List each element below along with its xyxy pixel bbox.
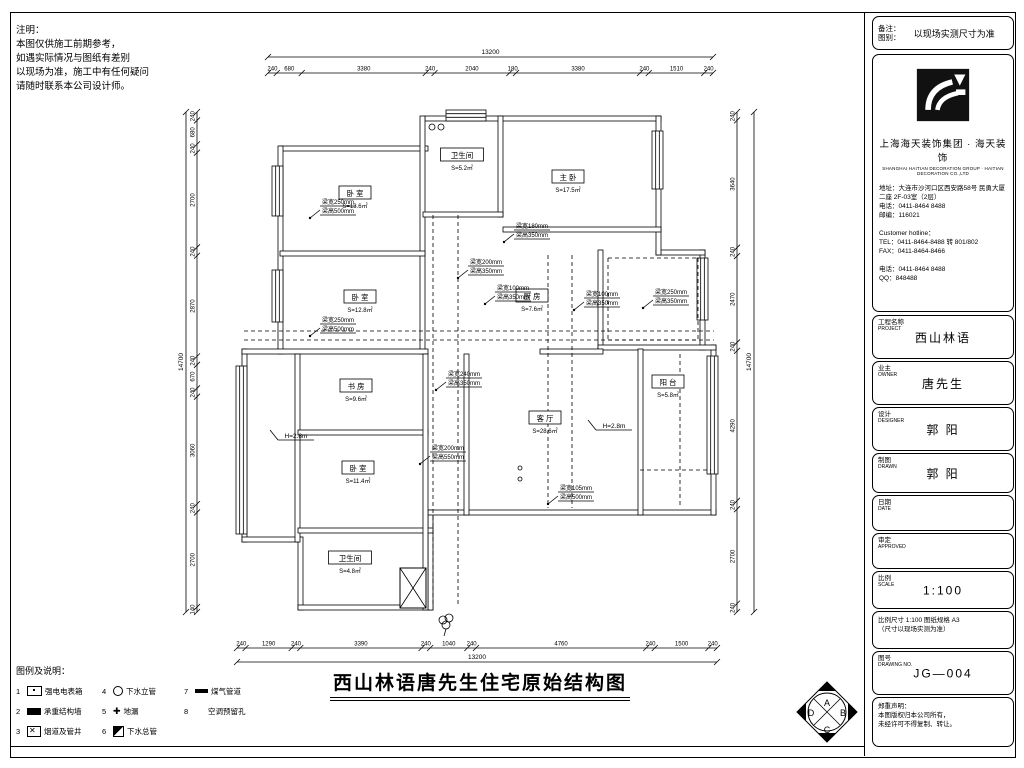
- wall: [540, 349, 603, 354]
- beam-tag: 梁高350mm: [470, 267, 502, 275]
- beam-leader: [457, 277, 459, 279]
- wall: [428, 510, 716, 515]
- titleblock-field: 比例 SCALE 1:100: [872, 571, 1014, 609]
- beam-tag: 梁宽100mm: [586, 290, 618, 298]
- dim-label: 670: [191, 371, 197, 382]
- beam-leader: [484, 303, 486, 305]
- dim-label: 240: [708, 642, 719, 648]
- drain-pipe-icon: [518, 466, 522, 470]
- legend-item-label: 下水立管: [126, 686, 156, 697]
- field-label-en: APPROVED: [873, 544, 1013, 550]
- legend-item-number: 4: [102, 687, 110, 696]
- room-area-label: S=5.2㎡: [451, 164, 473, 172]
- wall: [498, 116, 503, 217]
- beam-tag: 梁宽105mm: [560, 484, 592, 492]
- room-label: 卧 室: [349, 463, 367, 473]
- dim-label: 3380: [357, 67, 371, 73]
- remark-value: 以现场实测尺寸为准: [901, 27, 1009, 40]
- room-area-label: S=11.4㎡: [346, 477, 371, 485]
- dim-label: 1290: [262, 642, 276, 648]
- titleblock-field: 审定 APPROVED: [872, 533, 1014, 569]
- legend-item: 1 强电电表箱: [16, 686, 102, 697]
- window: [236, 366, 247, 534]
- room-area-label: S=12.8㎡: [347, 306, 372, 314]
- beam-leader: [436, 382, 446, 390]
- wall: [638, 349, 643, 515]
- wall: [428, 510, 433, 610]
- dim-total-label: 13200: [468, 654, 486, 661]
- beam-leader: [573, 309, 575, 311]
- dim-label: 140: [191, 604, 197, 615]
- address-line: 二座 2F-03室（2层）: [879, 193, 1007, 202]
- wall: [298, 528, 433, 533]
- beam-leader: [310, 328, 320, 336]
- room-area-label: S=7.6㎡: [521, 305, 543, 313]
- dim-label: 680: [191, 127, 197, 138]
- legend-item-label: 下水总管: [127, 726, 157, 737]
- stamp-letter: D: [808, 708, 815, 718]
- beam-tag: 梁宽180mm: [516, 222, 548, 230]
- beam-tag: 梁宽250mm: [322, 198, 354, 206]
- room-label: 卫生间: [339, 553, 362, 563]
- solid-symbol-icon: [27, 708, 41, 715]
- stamp-letter: C: [824, 725, 831, 735]
- drain-pipe-icon: [429, 124, 435, 130]
- beam-leader: [503, 241, 505, 243]
- legend-item-label: 煤气管道: [211, 686, 241, 697]
- cross-symbol-icon: ✚: [113, 707, 121, 716]
- height-note: H=2.8m: [603, 423, 626, 430]
- wall: [280, 251, 425, 256]
- company-address: 地址：大连市沙河口区西安路58号 民勇大厦二座 2F-03室（2层）电话：041…: [879, 184, 1007, 283]
- wall: [298, 430, 428, 435]
- company-name-en: SHANGHAI HAITIAN DECORATION GROUP · HAIT…: [879, 166, 1007, 176]
- address-line: 地址：大连市沙河口区西安路58号 民勇大厦: [879, 184, 1007, 193]
- beam-tag: 梁高500mm: [560, 493, 592, 501]
- legend-item-number: 1: [16, 687, 24, 696]
- dim-label: 240: [421, 642, 432, 648]
- dim-label: 240: [291, 642, 302, 648]
- dim-label: 180: [508, 67, 519, 73]
- wall: [242, 537, 301, 542]
- dim-label: 240: [191, 387, 197, 398]
- dim-label: 4760: [554, 642, 568, 648]
- legend-item-number: 3: [16, 727, 24, 736]
- beam-tag: 梁宽240mm: [448, 370, 480, 378]
- field-label: 工程名称: [873, 316, 1013, 326]
- beam-tag: 梁高350mm: [516, 231, 548, 239]
- address-line: [879, 220, 1007, 229]
- drawing-sheet: 注明：本图仅供施工前期参考，如遇实际情况与图纸有差别以现场为准，施工中有任何疑问…: [0, 0, 1024, 768]
- window: [652, 131, 663, 189]
- room-area-label: S=28.6㎡: [532, 427, 557, 435]
- stamp-corner: [818, 682, 836, 691]
- wall: [295, 354, 300, 542]
- legend-item-number: 2: [16, 707, 24, 716]
- dim-label: 1510: [670, 67, 684, 73]
- room-label: 客 厅: [536, 413, 554, 423]
- beam-tag: 梁宽200mm: [432, 444, 464, 452]
- titleblock-note: 比例尺寸 1:100 图纸规格 A3（尺寸以现场实测为准）: [872, 611, 1014, 649]
- dim-label: 1500: [675, 642, 689, 648]
- legend-item: 4 下水立管: [102, 686, 184, 697]
- dim-label: 3640: [731, 177, 737, 191]
- height-note-leader: [588, 420, 596, 430]
- beam-leader: [458, 270, 468, 278]
- height-note-leader: [270, 430, 278, 440]
- legend: 图例及说明： 1 强电电表箱2 承重结构墙3 烟道及管井4 下水立管5 ✚ 地漏…: [16, 664, 272, 741]
- legend-item: 7 煤气管道: [184, 686, 272, 697]
- beam-leader: [435, 389, 437, 391]
- wall: [242, 349, 428, 354]
- beam-leader: [643, 300, 653, 308]
- dim-label: 240: [236, 642, 247, 648]
- remark-label-1: 备注：: [878, 24, 901, 33]
- beam-tag: 梁高350mm: [448, 379, 480, 387]
- field-label: 比例: [873, 572, 1013, 582]
- wall: [656, 250, 705, 255]
- room-label: 卧 室: [346, 188, 364, 198]
- beam-leader: [642, 307, 644, 309]
- drawing-title: 西山林语唐先生住宅原始结构图: [330, 668, 630, 701]
- beam-tag: 梁高350mm: [655, 297, 687, 305]
- dim-label: 2870: [191, 299, 197, 313]
- room-area-label: S=9.6㎡: [345, 395, 367, 403]
- beam-leader: [309, 335, 311, 337]
- dim-label: 240: [467, 642, 478, 648]
- field-label: 日期: [873, 496, 1013, 506]
- box-x-symbol-icon: [27, 726, 41, 737]
- remark-box: 备注： 图别： 以现场实测尺寸为准: [872, 16, 1014, 50]
- window: [272, 166, 283, 216]
- circle-symbol-icon: [113, 686, 123, 696]
- stamp-corner: [797, 703, 806, 721]
- dim-label: 240: [191, 355, 197, 366]
- field-value: 唐先生: [873, 375, 1013, 392]
- address-line: 邮编：116021: [879, 211, 1007, 220]
- legend-item-number: 8: [184, 707, 192, 716]
- address-line: Customer hotline：: [879, 229, 1007, 238]
- company-box: 上海海天装饰集团 · 海天装饰 SHANGHAI HAITIAN DECORAT…: [872, 54, 1014, 312]
- wall: [598, 345, 716, 350]
- beam-leader: [574, 302, 584, 310]
- titleblock-field: 日期 DATE: [872, 495, 1014, 531]
- titleblock-note: 郑重声明：本图版权归本公司所有，未经许可不得复制、转让。: [872, 697, 1014, 747]
- window: [707, 356, 718, 474]
- dim-total-label: 14700: [746, 353, 753, 371]
- dim-label: 2040: [465, 67, 479, 73]
- legend-item: 8 空调预留孔: [184, 706, 272, 717]
- dim-label: 240: [731, 602, 737, 613]
- field-label: 审定: [873, 534, 1013, 544]
- drain-pipe-icon: [518, 477, 522, 481]
- stamp-corner: [848, 703, 857, 721]
- dim-label: 2700: [191, 193, 197, 207]
- field-label: 图号: [873, 652, 1013, 662]
- company-logo: [879, 67, 1007, 128]
- note-text: 郑重声明：本图版权归本公司所有，未经许可不得复制、转让。: [873, 698, 1013, 733]
- field-value: 1:100: [873, 584, 1013, 598]
- dim-label: 2470: [731, 292, 737, 306]
- titleblock-field: 图号 DRAWING NO. JG—004: [872, 651, 1014, 695]
- dim-label: 240: [731, 499, 737, 510]
- dim-label: 240: [191, 246, 197, 257]
- room-label: 卫生间: [451, 150, 474, 160]
- legend-item: 2 承重结构墙: [16, 706, 102, 717]
- remark-labels: 备注： 图别：: [878, 24, 901, 42]
- field-label: 设计: [873, 408, 1013, 418]
- legend-item: 5 ✚ 地漏: [102, 706, 184, 717]
- address-line: [879, 256, 1007, 265]
- beam-tag: 梁高500mm: [322, 325, 354, 333]
- titleblock-field: 工程名称 PROJECT 西山林语: [872, 315, 1014, 359]
- dim-label: 3060: [191, 443, 197, 457]
- dim-label: 240: [645, 642, 656, 648]
- dim-label: 1040: [442, 642, 456, 648]
- dim-label: 240: [191, 143, 197, 154]
- beam-tag: 梁宽250mm: [322, 316, 354, 324]
- field-label: 制图: [873, 454, 1013, 464]
- box-dot-symbol-icon: [27, 686, 42, 696]
- legend-item-label: 空调预留孔: [208, 706, 246, 717]
- remark-label-2: 图别：: [878, 33, 901, 42]
- beam-tag: 梁宽250mm: [655, 288, 687, 296]
- legend-title: 图例及说明：: [16, 664, 272, 677]
- room-label: 书 房: [347, 381, 364, 391]
- field-value: JG—004: [873, 667, 1013, 681]
- dim-label: 240: [704, 67, 715, 73]
- wall: [420, 116, 425, 354]
- beam-leader: [485, 296, 495, 304]
- room-label: 主 卧: [559, 172, 577, 182]
- address-line: 电话：0411-8464 8488: [879, 202, 1007, 211]
- dim-label: 2700: [731, 549, 737, 563]
- dim-label: 680: [284, 67, 295, 73]
- wall: [423, 212, 503, 217]
- height-note: H=2.8m: [285, 433, 308, 440]
- room-area-label: S=5.8㎡: [657, 391, 679, 399]
- dim-label: 240: [639, 67, 650, 73]
- beam-leader: [419, 463, 421, 465]
- field-label-en: DATE: [873, 506, 1013, 512]
- address-line: FAX：0411-8464-8466: [879, 247, 1007, 256]
- address-line: QQ：848488: [879, 274, 1007, 283]
- beam-leader: [548, 496, 558, 504]
- note-text: 比例尺寸 1:100 图纸规格 A3（尺寸以现场实测为准）: [873, 612, 1013, 638]
- beam-tag: 梁高350mm: [497, 293, 529, 301]
- field-value: 郭 阳: [873, 465, 1013, 482]
- field-value: 西山林语: [873, 329, 1013, 346]
- dim-label: 3390: [354, 642, 368, 648]
- dim-label: 4290: [731, 418, 737, 432]
- wall: [598, 250, 603, 350]
- dim-label: 240: [731, 246, 737, 257]
- address-line: 电话：0411-8464 8488: [879, 265, 1007, 274]
- beam-tag: 梁高500mm: [322, 207, 354, 215]
- beam-tag: 梁宽200mm: [470, 258, 502, 266]
- half-symbol-icon: [113, 726, 124, 737]
- beam-tag: 梁宽100mm: [497, 284, 529, 292]
- legend-item-number: 7: [184, 687, 192, 696]
- titleblock-field: 制图 DRAWN 郭 阳: [872, 453, 1014, 493]
- legend-item-label: 烟道及管井: [44, 726, 82, 737]
- wall: [298, 537, 303, 610]
- dim-label: 240: [267, 67, 278, 73]
- dim-label: 2700: [191, 552, 197, 566]
- field-value: 郭 阳: [873, 421, 1013, 438]
- legend-item: 6 下水总管: [102, 726, 184, 737]
- dim-total-label: 14700: [178, 353, 185, 371]
- drain-pipe-icon: [438, 124, 444, 130]
- legend-item-label: 地漏: [124, 706, 139, 717]
- dim-label: 240: [731, 341, 737, 352]
- field-label: 业主: [873, 362, 1013, 372]
- room-area-label: S=17.5㎡: [555, 186, 580, 194]
- dim-label: 240: [191, 503, 197, 514]
- dim-label: 3380: [571, 67, 585, 73]
- floor-plan-svg: 卧 室S=13.6㎡卫生间S=5.2㎡主 卧S=17.5㎡卧 室S=12.8㎡厨…: [0, 0, 1024, 768]
- dim-label: 240: [191, 111, 197, 122]
- company-name-cn: 上海海天装饰集团 · 海天装饰: [879, 136, 1007, 164]
- dim-label: 240: [731, 111, 737, 122]
- legend-item: 3 烟道及管井: [16, 726, 102, 737]
- dim-total-label: 13200: [481, 49, 499, 56]
- window: [697, 258, 708, 320]
- room-label: 阳 台: [659, 377, 676, 387]
- stamp-letter: A: [824, 698, 830, 708]
- bar-symbol-icon: [195, 689, 208, 693]
- wall: [280, 146, 428, 151]
- address-line: TEL：0411-8464-8488 转 801/802: [879, 238, 1007, 247]
- titleblock-field: 设计 DESIGNER 郭 阳: [872, 407, 1014, 451]
- window: [272, 270, 283, 322]
- dim-label: 240: [425, 67, 436, 73]
- legend-item-label: 承重结构墙: [44, 706, 82, 717]
- beam-tag: 梁高550mm: [432, 453, 464, 461]
- titleblock-field: 业主 OWNER 唐先生: [872, 361, 1014, 405]
- room-label: 卧 室: [351, 292, 369, 302]
- legend-item-label: 强电电表箱: [45, 686, 83, 697]
- legend-item-number: 5: [102, 707, 110, 716]
- flower-icon: [444, 629, 446, 636]
- beam-leader: [504, 234, 514, 242]
- window: [446, 110, 486, 121]
- none-symbol-icon: [195, 707, 205, 715]
- beam-leader: [309, 217, 311, 219]
- beam-leader: [547, 503, 549, 505]
- beam-tag: 梁高350mm: [586, 299, 618, 307]
- room-area-label: S=4.8㎡: [339, 567, 361, 575]
- stamp-letter: B: [840, 708, 846, 718]
- beam-leader: [310, 210, 320, 218]
- legend-item-number: 6: [102, 727, 110, 736]
